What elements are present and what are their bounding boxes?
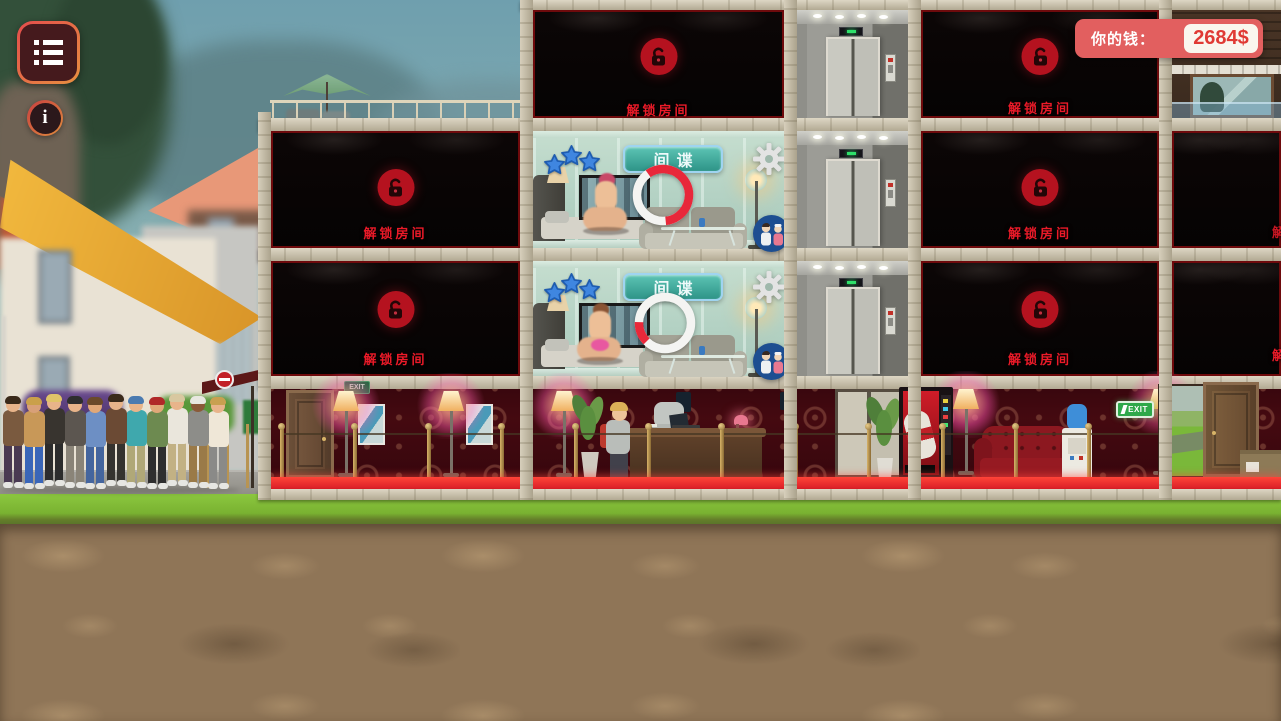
locked-room-partial[interactable]	[1172, 131, 1281, 248]
stanchion-post	[720, 428, 724, 484]
building-pillar	[908, 0, 921, 500]
star-icon	[578, 150, 601, 173]
stanchion-post	[280, 428, 284, 484]
star-icon	[578, 278, 601, 301]
elevator-shaft	[797, 261, 908, 376]
building-base	[258, 489, 1281, 500]
queue-pole	[246, 424, 249, 488]
elevator-display	[839, 27, 863, 36]
floor-slab	[258, 118, 1281, 131]
unlock-room-label: 解锁房间	[923, 98, 1157, 117]
lock-icon	[1022, 291, 1059, 328]
building-pillar	[784, 0, 797, 500]
locked-room[interactable]: 解锁房间	[271, 261, 520, 376]
elevator-display	[839, 149, 863, 158]
building-pillar	[1159, 0, 1172, 500]
locked-room-partial[interactable]	[1172, 261, 1281, 376]
unlock-room-label: 解锁房间	[273, 223, 518, 242]
building-pillar	[258, 112, 271, 500]
dirt-ground	[0, 524, 1281, 721]
awning-strip	[1172, 65, 1281, 74]
elevator-panel	[885, 54, 896, 82]
gear-icon[interactable]	[752, 270, 786, 304]
awning-pole	[251, 386, 254, 488]
money-label: 你的钱：	[1091, 28, 1155, 49]
gear-icon[interactable]	[752, 142, 786, 176]
elevator-door	[826, 37, 880, 116]
lock-icon	[1022, 38, 1059, 75]
lock-icon	[377, 291, 414, 328]
locked-room[interactable]: 解锁房间	[533, 10, 784, 118]
room-rating-stars	[543, 271, 605, 305]
elevator-shaft	[797, 10, 908, 118]
money-display: 你的钱： 2684$	[1075, 19, 1263, 58]
terrace-rail-bar	[270, 100, 522, 103]
coffee-table	[661, 227, 745, 247]
elevator-display	[839, 278, 863, 287]
customer-queue	[0, 394, 245, 496]
unlock-room-label: 解锁房间	[273, 349, 518, 368]
unlock-room-label: 解锁房间	[923, 349, 1157, 368]
elevator-door	[826, 287, 880, 374]
active-room-floor3: 间谍	[533, 261, 784, 376]
elevator-panel	[885, 179, 896, 207]
unlock-room-label-clipped: 解锁房间	[1272, 222, 1281, 241]
bed-pillow	[545, 211, 569, 223]
elevator-door	[826, 159, 880, 246]
stanchion-post	[1087, 428, 1091, 484]
progress-ring	[633, 291, 697, 355]
list-menu-icon	[20, 24, 77, 81]
locked-room[interactable]: 解锁房间	[921, 131, 1159, 248]
game-screen: 解锁房间 解锁房间 解锁房间	[0, 0, 1281, 721]
elevator-shaft	[797, 131, 908, 248]
lock-icon	[377, 169, 414, 206]
stanchion-post	[574, 428, 578, 484]
exit-sign: EXIT	[1116, 401, 1154, 418]
stanchion-post	[647, 428, 651, 484]
info-button[interactable]: i	[27, 100, 63, 136]
stanchion-post	[427, 428, 431, 484]
money-value: 2684$	[1184, 24, 1258, 53]
coffee-table	[661, 355, 745, 375]
info-icon: i	[30, 103, 61, 134]
room-characters	[583, 173, 631, 239]
stanchion-post	[1014, 428, 1018, 484]
unlock-room-label-clipped: 解锁房间	[1272, 345, 1281, 364]
lock-icon	[1022, 169, 1059, 206]
background-house-window	[38, 250, 72, 324]
locked-room[interactable]: 解锁房间	[271, 131, 520, 248]
room-characters	[577, 303, 625, 369]
stanchion-post	[867, 428, 871, 484]
stanchion-post	[500, 428, 504, 484]
active-room-floor2: 间谍	[533, 131, 784, 248]
stanchion-post	[353, 428, 357, 484]
room-rating-stars	[543, 143, 605, 177]
glass-balustrade	[1172, 102, 1281, 118]
unlock-room-label: 解锁房间	[535, 100, 782, 119]
no-entry-bar	[219, 378, 230, 381]
queued-customer	[0, 397, 27, 493]
bed-pillow	[545, 339, 569, 351]
unlock-room-label: 解锁房间	[923, 223, 1157, 242]
elevator-panel	[885, 307, 896, 335]
building-pillar	[520, 0, 533, 500]
lock-icon	[640, 38, 677, 75]
progress-ring	[631, 163, 695, 227]
stanchion-post	[941, 428, 945, 484]
locked-room[interactable]: 解锁房间	[921, 261, 1159, 376]
menu-button[interactable]	[17, 21, 80, 84]
